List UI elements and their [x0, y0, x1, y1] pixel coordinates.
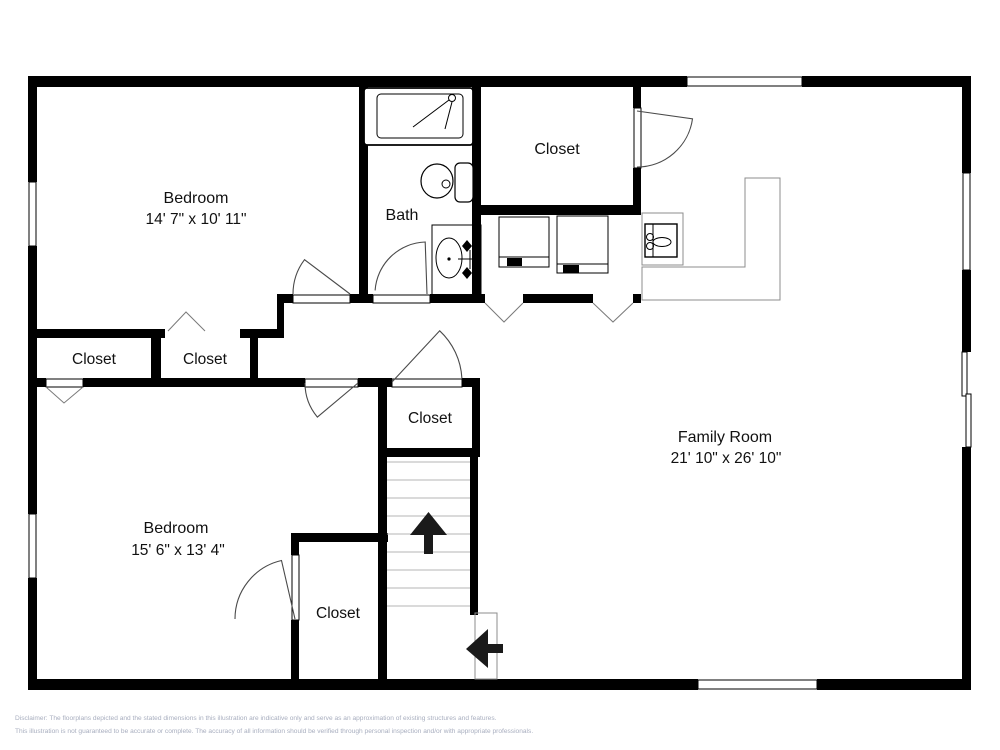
door-swing	[375, 242, 427, 294]
wall	[481, 205, 633, 215]
stairs-up-arrow-icon	[410, 512, 447, 554]
window	[687, 77, 802, 86]
wall	[291, 620, 299, 679]
door-swing	[235, 561, 295, 620]
room-label-closet-center: Closet	[408, 410, 453, 427]
room-label-closet-hall-left: Closet	[72, 351, 117, 368]
wall	[28, 76, 687, 87]
room-label-closet-hall-right: Closet	[183, 351, 228, 368]
wall	[83, 378, 305, 387]
wall	[962, 76, 971, 173]
room-dims-bedroom-bottom: 15' 6" x 13' 4"	[131, 542, 225, 559]
wall	[240, 329, 284, 338]
wall	[28, 378, 46, 387]
door-swing	[637, 111, 693, 167]
floorplan-drawing: Bedroom 14' 7" x 10' 11" Bath Closet Clo…	[0, 0, 1000, 750]
wall	[291, 542, 299, 555]
wall	[151, 338, 161, 378]
door-threshold	[392, 379, 462, 387]
room-label-bedroom-bottom: Bedroom	[144, 520, 209, 537]
wall	[28, 578, 37, 690]
door-threshold	[634, 108, 641, 168]
door-swing	[293, 260, 350, 294]
wall	[633, 168, 641, 215]
bifold-door-chevron	[46, 387, 83, 403]
bifold-door-chevron	[485, 303, 523, 322]
door-threshold	[46, 379, 83, 387]
wall	[962, 447, 971, 690]
wall	[817, 679, 971, 690]
window	[698, 680, 817, 689]
staircase-icon	[387, 462, 503, 679]
wall	[28, 679, 698, 690]
wall	[378, 448, 478, 457]
door-threshold	[373, 295, 430, 303]
door-swing	[392, 331, 462, 382]
window	[966, 394, 971, 447]
wall	[523, 294, 593, 303]
room-dims-bedroom-top: 14' 7" x 10' 11"	[145, 211, 246, 228]
wall	[358, 378, 392, 387]
window	[29, 514, 36, 578]
room-label-bath: Bath	[386, 207, 419, 224]
window	[962, 352, 967, 396]
wall	[633, 87, 641, 108]
window	[963, 173, 970, 270]
wall	[802, 76, 971, 87]
floorplan: Bedroom 14' 7" x 10' 11" Bath Closet Clo…	[0, 0, 1000, 750]
door-swing	[305, 383, 358, 417]
wall	[472, 378, 480, 457]
washer-icon	[499, 217, 549, 267]
room-label-family-room: Family Room	[678, 429, 772, 446]
door-threshold	[305, 379, 358, 387]
bathtub-icon	[364, 88, 473, 145]
wall	[28, 76, 37, 182]
dryer-icon	[557, 216, 608, 273]
counter-icon	[642, 178, 780, 300]
disclaimer-line-2: This illustration is not guaranteed to b…	[15, 728, 533, 735]
room-dims-family-room: 21' 10" x 26' 10"	[671, 450, 782, 467]
utility-sink-icon	[642, 213, 683, 265]
room-label-bedroom-top: Bedroom	[164, 190, 229, 207]
wall	[28, 329, 165, 338]
wall	[470, 457, 478, 615]
disclaimer-line-1: Disclaimer: The floorplans depicted and …	[15, 715, 497, 722]
room-label-closet-bottom: Closet	[316, 605, 361, 622]
toilet-icon	[421, 163, 473, 202]
bifold-door-chevron	[168, 312, 205, 331]
bifold-chevrons	[46, 303, 633, 403]
wall	[350, 294, 373, 303]
wall	[962, 270, 971, 352]
window	[29, 182, 36, 246]
door-threshold	[293, 295, 350, 303]
room-label-closet-top: Closet	[534, 141, 580, 158]
wall	[291, 533, 388, 542]
bifold-door-chevron	[593, 303, 633, 322]
wall	[633, 294, 641, 303]
